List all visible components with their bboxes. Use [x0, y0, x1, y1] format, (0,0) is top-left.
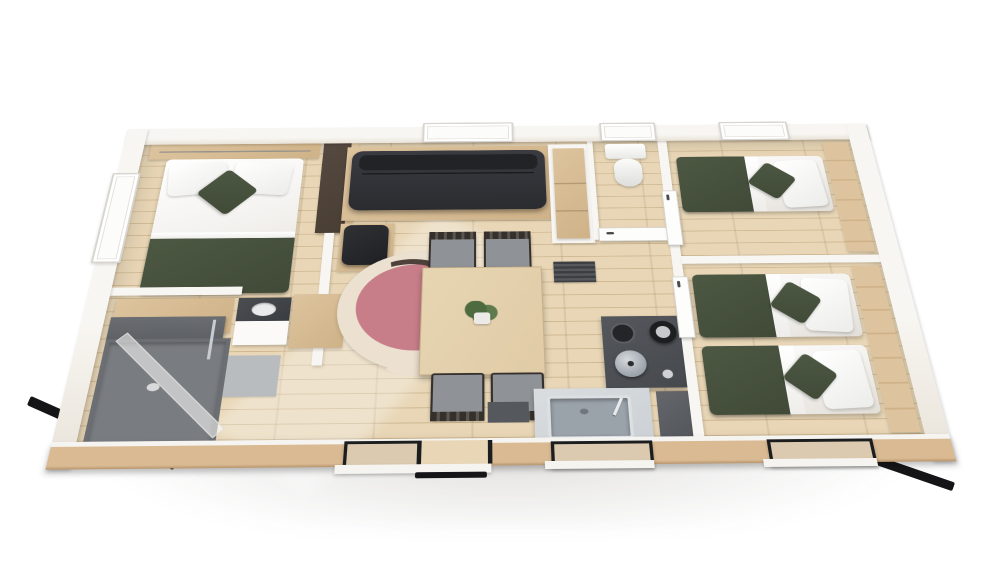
shelf-seam-2 — [556, 210, 589, 212]
bedroom3-window-sill — [763, 458, 878, 467]
floorplan-3d — [45, 123, 956, 469]
wc-window — [599, 122, 657, 141]
living-room-window — [422, 122, 513, 142]
bedroom2-door-handle — [666, 194, 670, 200]
cooktop-knob — [662, 369, 674, 378]
single-bed-2-blanket — [692, 274, 777, 337]
bedroom2-window — [718, 121, 790, 140]
entrance-step — [415, 472, 487, 479]
slatted-doormat — [553, 261, 596, 282]
wall-bedroom-bathroom — [110, 287, 243, 296]
kettle-lid — [655, 326, 671, 338]
dining-chair-2 — [484, 233, 532, 270]
kitchen-window-sill — [545, 460, 655, 469]
sink-drain — [580, 409, 589, 415]
dining-chair-3 — [430, 373, 484, 420]
wall-between-bedrooms — [681, 254, 881, 263]
pot-lid-knob — [627, 361, 634, 366]
plant-pot — [474, 312, 490, 324]
wc-door-handle — [606, 232, 614, 234]
toilet-cistern — [604, 144, 646, 159]
sofa-backrest — [359, 154, 538, 170]
bath-mat — [220, 355, 281, 397]
kitchen-floor-mat — [488, 402, 530, 423]
toilet-bowl — [613, 159, 644, 187]
master-blanket — [139, 238, 295, 294]
entrance-doorway-opening — [416, 440, 492, 464]
shelf-column-wood-interior — [552, 148, 590, 238]
single-bed-1-blanket — [676, 156, 754, 212]
dining-chair-1 — [428, 233, 476, 270]
shelf-seam-1 — [554, 183, 586, 185]
single-bed-3-blanket — [701, 346, 790, 415]
floorplan-render-scene — [0, 0, 1000, 563]
